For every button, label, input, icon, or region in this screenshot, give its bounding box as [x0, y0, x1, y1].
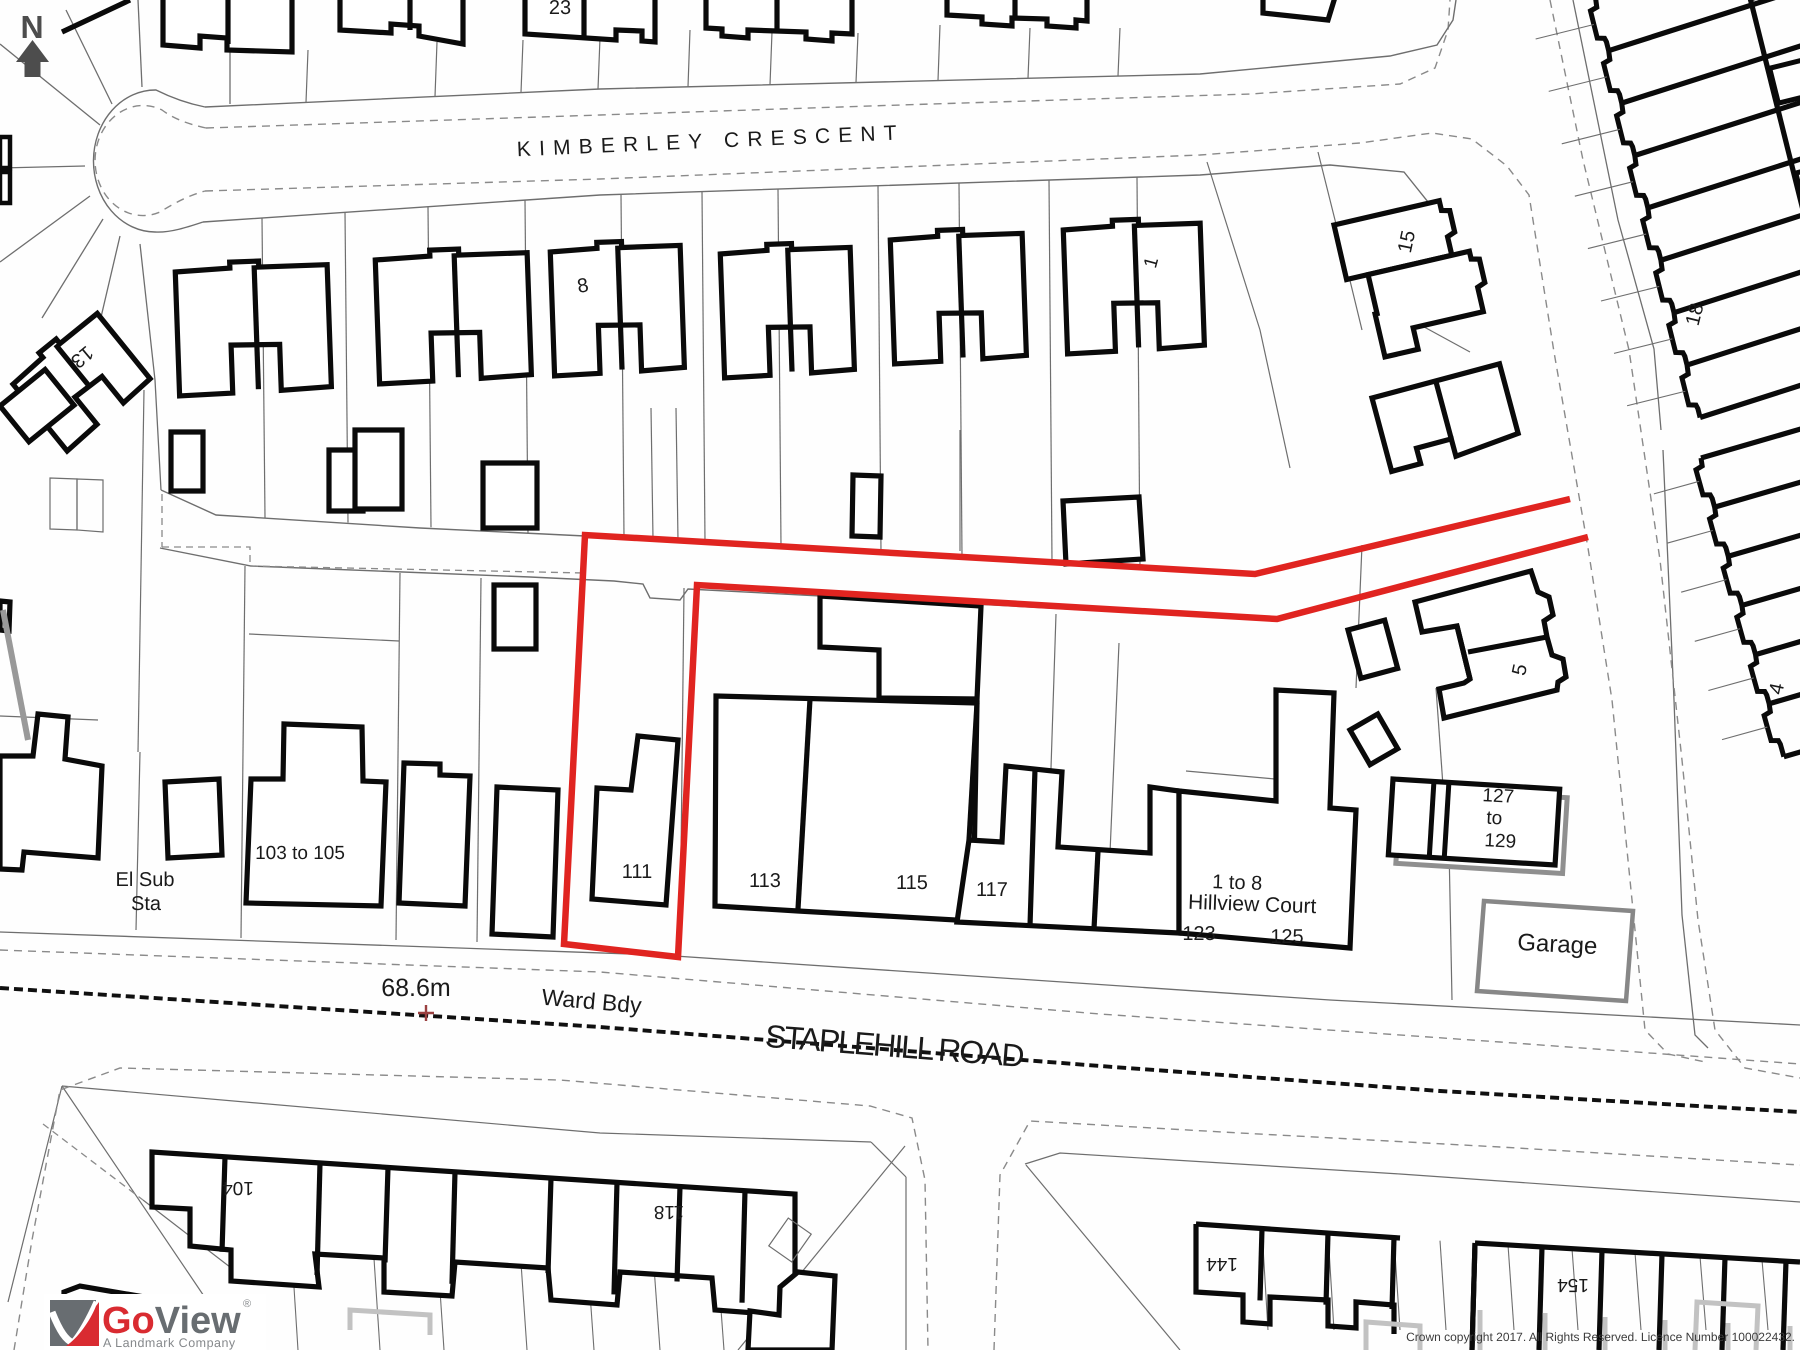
svg-text:125: 125: [1270, 926, 1303, 948]
svg-text:A Landmark Company: A Landmark Company: [103, 1336, 236, 1350]
svg-text:Sta: Sta: [131, 893, 162, 915]
svg-text:Garage: Garage: [1517, 929, 1598, 960]
svg-text:®: ®: [243, 1298, 251, 1310]
svg-text:Hillview Court: Hillview Court: [1188, 891, 1317, 918]
svg-text:113: 113: [749, 870, 781, 892]
svg-text:129: 129: [1484, 830, 1517, 853]
svg-text:N: N: [20, 9, 43, 45]
svg-text:123: 123: [1182, 923, 1215, 945]
svg-text:104: 104: [222, 1177, 254, 1198]
svg-text:23: 23: [549, 0, 571, 19]
svg-text:154: 154: [1557, 1274, 1589, 1295]
svg-text:117: 117: [976, 879, 1008, 901]
svg-text:115: 115: [896, 872, 928, 894]
svg-text:El Sub: El Sub: [116, 869, 175, 891]
svg-text:144: 144: [1206, 1253, 1238, 1274]
svg-text:15: 15: [1394, 229, 1420, 255]
svg-text:111: 111: [622, 861, 652, 883]
svg-text:68.6m: 68.6m: [381, 974, 450, 1002]
svg-text:127: 127: [1482, 785, 1515, 808]
svg-text:Crown copyright 2017. All Righ: Crown copyright 2017. All Rights Reserve…: [1406, 1330, 1795, 1344]
svg-text:to: to: [1486, 808, 1503, 830]
svg-text:103 to 105: 103 to 105: [255, 843, 345, 864]
svg-text:118: 118: [654, 1201, 684, 1222]
